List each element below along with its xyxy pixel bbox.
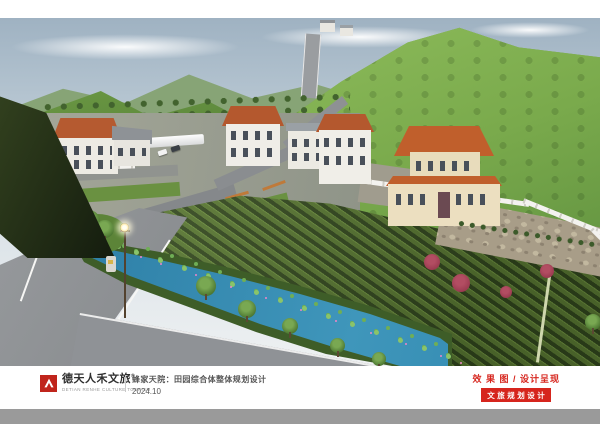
project-block: 蜂家天院：田园综合体整体规划设计 2024.10 — [132, 374, 266, 396]
cloud — [10, 34, 240, 60]
vertical-divider — [125, 375, 126, 392]
lotus-flowers — [140, 256, 142, 258]
mountain-a-icon — [43, 377, 55, 389]
front-door — [438, 192, 450, 218]
footer: 德天人禾文旅® DETIAN RENHE CULTURE TOURISM 蜂家天… — [0, 366, 600, 409]
street-lamp-pole — [124, 232, 126, 318]
red-ornamental-tree — [452, 274, 470, 292]
tree — [585, 314, 600, 330]
house-big-villa — [382, 126, 507, 228]
hilltop-house — [340, 25, 353, 36]
tree — [238, 300, 256, 318]
stage-tag: 文旅规划设计 — [481, 388, 551, 402]
house-center — [222, 106, 284, 172]
page-bottom-margin — [0, 409, 600, 424]
ground-floor — [388, 184, 500, 226]
cloud — [470, 22, 590, 38]
red-ornamental-tree — [424, 254, 440, 270]
house-body — [114, 140, 150, 166]
tree — [282, 318, 298, 334]
orange-roof — [222, 106, 284, 126]
stage-block: 效 果 图 / 设计呈现 文旅规划设计 — [472, 372, 560, 403]
red-ornamental-tree — [540, 264, 554, 278]
tree — [372, 352, 386, 366]
stone-sign — [106, 256, 116, 272]
red-ornamental-tree — [500, 286, 512, 298]
house-body — [319, 130, 371, 184]
stage-label: 效 果 图 / 设计呈现 — [472, 372, 560, 385]
tree — [196, 276, 216, 296]
project-title: 蜂家天院：田园综合体整体规划设计 — [132, 374, 266, 385]
logo-name-cn-text: 德天人禾文旅 — [62, 373, 131, 385]
project-date: 2024.10 — [132, 387, 266, 396]
hilltop-house — [320, 20, 335, 32]
street-lamp-light — [120, 223, 129, 232]
house-body — [226, 124, 280, 166]
upper-floor — [410, 152, 480, 180]
tree — [330, 338, 345, 353]
house-right-white — [316, 114, 374, 192]
logo-mark-icon — [40, 375, 57, 392]
rendering-viewport — [0, 18, 600, 366]
sign-text-mark — [108, 260, 113, 264]
